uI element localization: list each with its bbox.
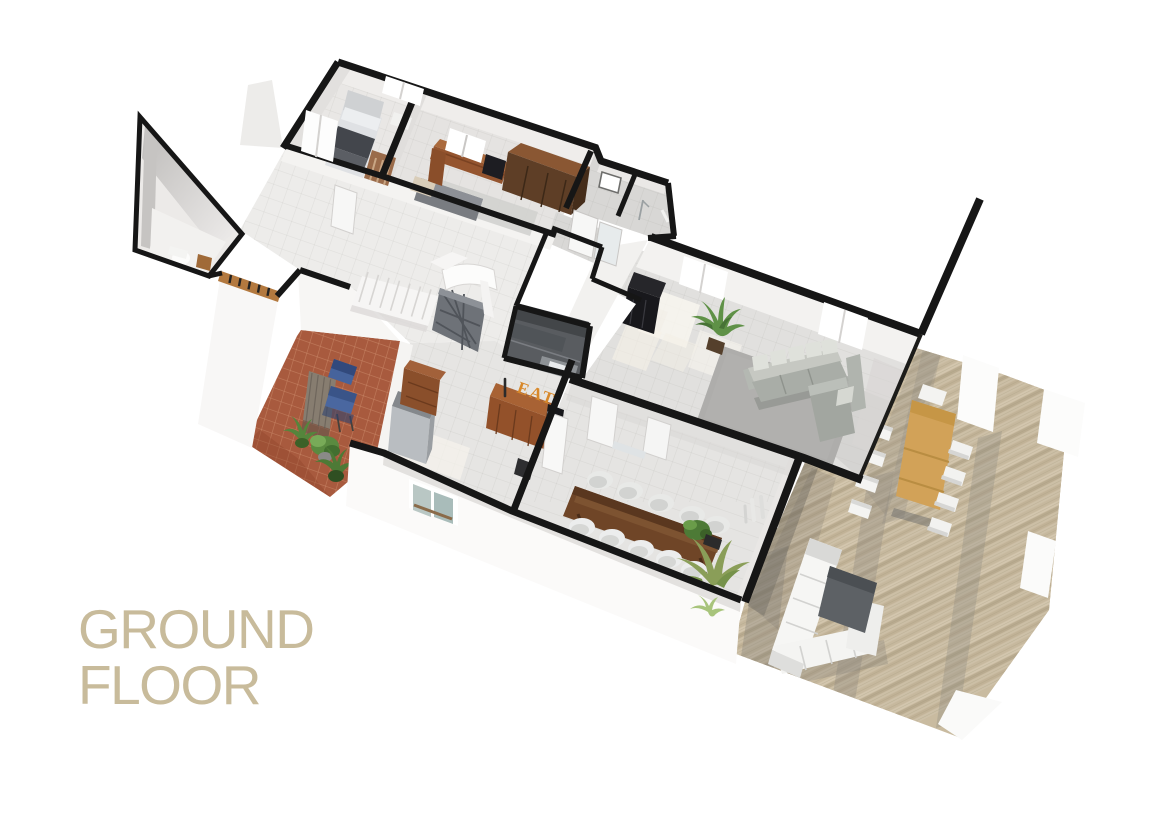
svg-text:GROUND: GROUND — [78, 598, 313, 660]
svg-text:FLOOR: FLOOR — [78, 654, 260, 716]
